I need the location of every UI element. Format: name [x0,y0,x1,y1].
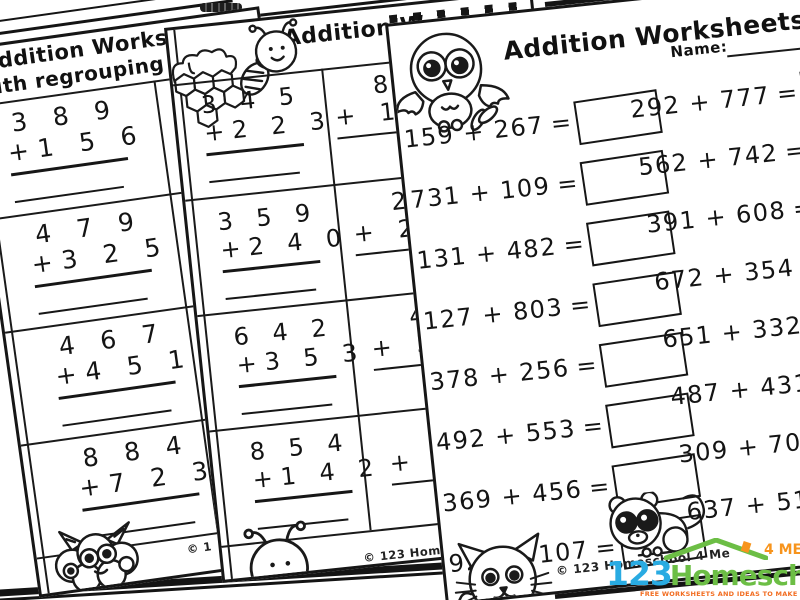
worksheet-page-horizontal: Addition Worksheets Name: 159 + 267= 731… [385,0,800,600]
stacked-problem: 8 5 4 +1 4 2 [248,428,355,530]
partial-problem: 8 +1 [331,70,397,140]
logo-tagline: FREE WORKSHEETS AND IDEAS TO MAKE LEARNI… [640,590,800,598]
sheet3-title: Addition Worksheets [502,5,800,66]
stacked-problem: 3 5 9 +2 4 0 [216,198,323,300]
logo-word: Homeschool [670,559,800,592]
equals-sign: = [581,411,605,441]
equals-sign: = [562,229,586,259]
equals-sign: = [549,108,573,138]
plus-sign: + [352,218,375,248]
plus-sign: + [54,358,88,391]
sheet2-copyright: © 123 Hom [363,543,442,565]
equals-sign: = [784,136,800,166]
sum-line [356,248,416,256]
plus-sign: + [6,135,40,168]
logo-number: 123 [606,554,672,593]
bee-icon [210,517,330,582]
answer-line [226,289,317,301]
plus-sign: + [235,348,266,379]
stacked-problem: 6 4 2 +3 5 3 [232,313,339,415]
answer-line [62,409,171,426]
stacked-problem: 3 4 5 +2 2 3 [200,81,307,183]
stacked-problem: 4 7 9 +3 2 5 [26,205,156,315]
site-logo: 4 ME 123Homeschool FREE WORKSHEETS AND I… [606,542,800,600]
plus-sign: + [334,102,357,132]
equals-sign: = [575,351,599,381]
horizontal-problem: 672 + 354= [652,233,800,304]
plus-sign: + [251,463,282,494]
plus-sign: + [77,470,111,503]
horizontal-problem: 492 + 553= [434,394,694,465]
answer-line [242,403,333,415]
name-line [727,40,800,58]
equals-sign: = [556,169,580,199]
plus-sign: + [30,246,64,279]
plus-sign: + [203,117,234,148]
equals-sign: = [776,78,800,108]
equals-sign: = [792,193,800,223]
stacked-problem: 4 6 7 +4 5 1 [50,317,180,427]
equals-sign: = [569,290,593,320]
plus-sign: + [370,333,393,363]
horizontal-problem: 292 + 777= [628,61,800,132]
sheet1-copyright: © 1 [186,539,213,556]
plus-sign: + [388,448,411,478]
answer-line [39,298,148,315]
answer-line [209,172,300,184]
sum-line [337,131,397,139]
stacked-problem: 3 8 9 +1 5 6 [2,94,132,204]
horizontal-problem: 127 + 803= [421,273,681,344]
horizontal-problem: 131 + 482= [415,212,675,283]
cat-illustration [448,529,570,600]
horizontal-problem: 731 + 109= [408,152,668,223]
plus-sign: + [219,233,250,264]
horizontal-problem: 378 + 256= [427,334,687,405]
answer-line [15,186,124,203]
worksheet-collage: Addition Worksh with regrouping 3 8 9 +1… [0,0,800,600]
